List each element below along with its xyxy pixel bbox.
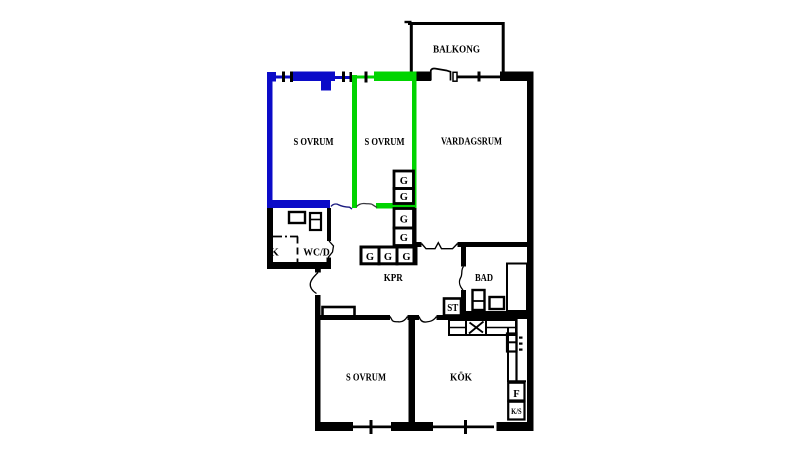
svg-text:KPR: KPR [384,273,403,284]
svg-text:S OVRUM: S OVRUM [365,137,405,148]
svg-text:S OVRUM: S OVRUM [294,137,334,148]
svg-text:K: K [270,247,279,259]
svg-text:G: G [400,233,408,244]
svg-text:G: G [400,176,408,187]
svg-text:WC/D: WC/D [303,247,330,259]
svg-text:BALKONG: BALKONG [433,45,480,56]
svg-text:BAD: BAD [475,273,493,284]
svg-text:G: G [384,252,392,263]
svg-text:G: G [400,192,408,203]
svg-text:F: F [513,389,519,400]
svg-text:K/S: K/S [511,407,522,416]
svg-text:S OVRUM: S OVRUM [346,373,386,384]
svg-text:ST: ST [447,303,458,314]
svg-text:KÖK: KÖK [450,371,473,384]
svg-text:G: G [366,252,374,263]
svg-text:G: G [402,252,410,263]
svg-text:VARDAGSRUM: VARDAGSRUM [441,137,502,148]
svg-text:G: G [400,215,408,226]
